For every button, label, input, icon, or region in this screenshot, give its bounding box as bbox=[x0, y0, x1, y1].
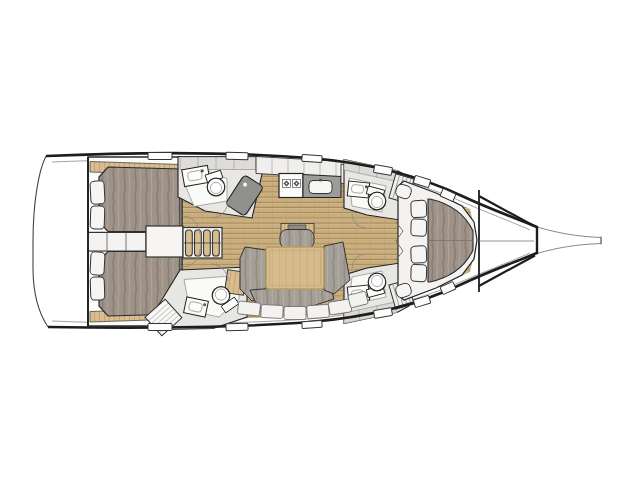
yacht-floor-plan bbox=[0, 0, 640, 479]
companionway-landing bbox=[146, 226, 183, 257]
sink-icon bbox=[347, 181, 369, 198]
deck-hatch-icon bbox=[302, 154, 322, 162]
toilet-icon bbox=[212, 287, 230, 305]
deck-hatch-icon bbox=[226, 152, 248, 160]
salon-bench-cushion bbox=[280, 230, 314, 249]
pillow bbox=[411, 219, 427, 237]
galley-sink-icon bbox=[309, 181, 332, 194]
bed-mattress bbox=[99, 167, 180, 232]
companionway-stairs-icon bbox=[183, 228, 222, 259]
pillow bbox=[90, 277, 105, 300]
aft-cabin-port bbox=[88, 157, 182, 233]
pillow bbox=[90, 181, 105, 205]
bow bbox=[479, 190, 601, 292]
pillow bbox=[90, 252, 105, 276]
pillow bbox=[411, 246, 427, 264]
pillow bbox=[90, 206, 105, 229]
deck-hatch-icon bbox=[302, 320, 322, 328]
toilet-icon bbox=[368, 192, 386, 210]
toilet-icon bbox=[207, 178, 225, 196]
toilet-icon bbox=[368, 273, 386, 291]
salon-table bbox=[266, 247, 324, 289]
burner-icon bbox=[283, 180, 291, 188]
deck-hatch-icon bbox=[148, 324, 172, 331]
pillow bbox=[411, 264, 427, 282]
screenshot-canvas bbox=[0, 0, 640, 479]
burner-icon bbox=[293, 180, 301, 188]
deck-hatch-icon bbox=[226, 323, 248, 331]
pillow bbox=[411, 200, 427, 218]
deck-hatch-icon bbox=[148, 153, 172, 160]
bowsprit-icon bbox=[537, 227, 601, 254]
